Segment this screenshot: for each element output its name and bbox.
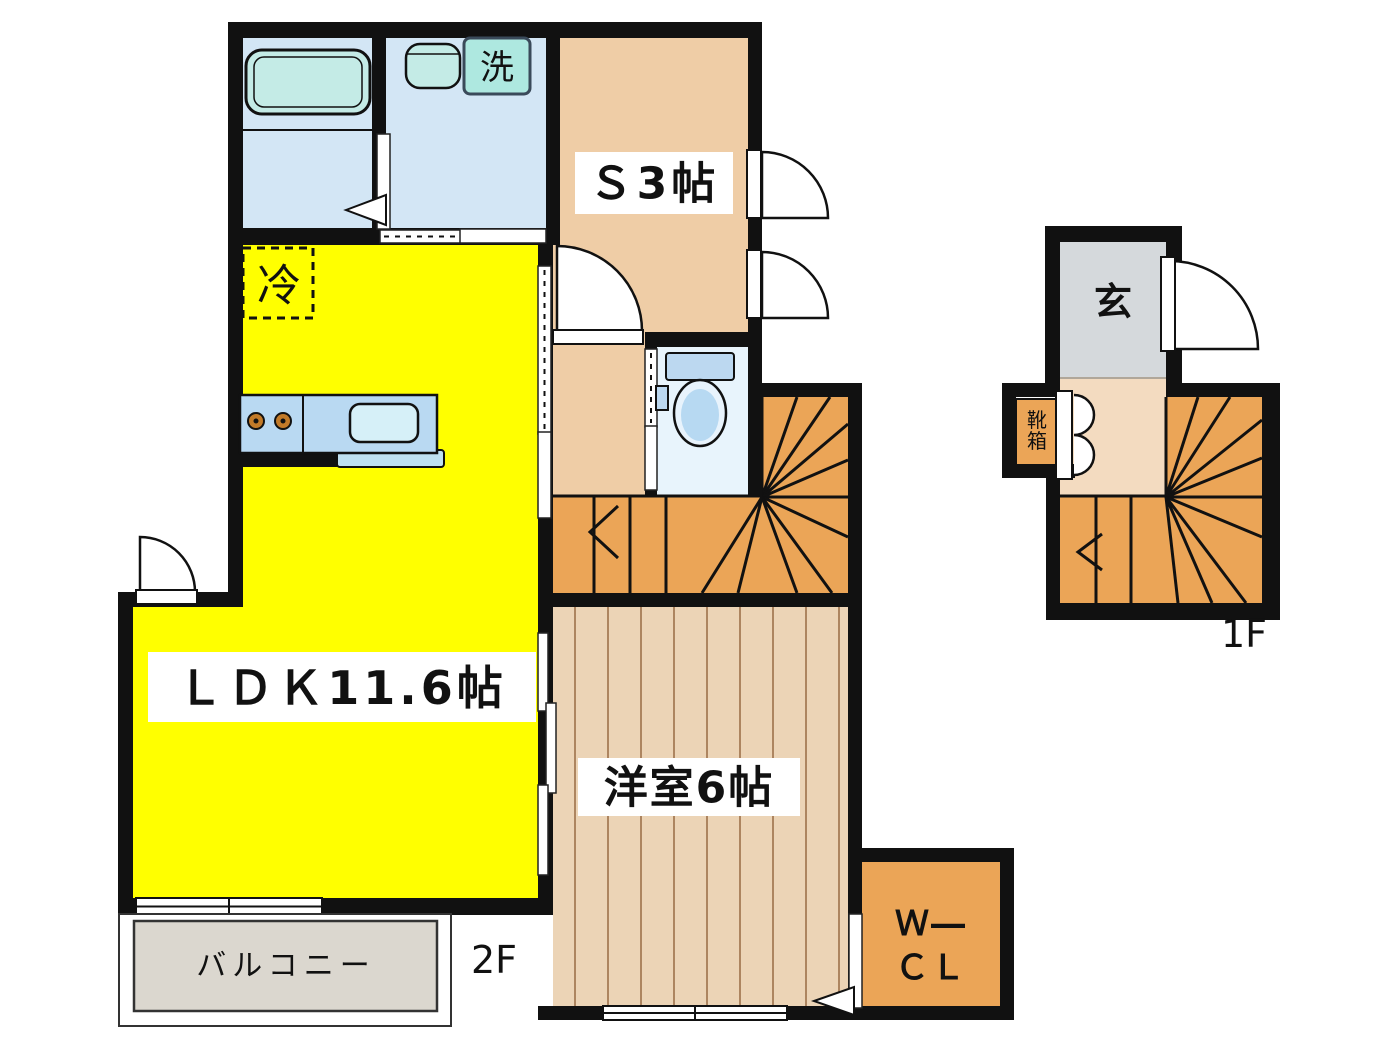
ldk-label: ＬＤＫ11.6帖 bbox=[177, 661, 507, 715]
floor2-label: 2F bbox=[471, 938, 517, 982]
entrance-door-leaf bbox=[1161, 257, 1175, 351]
floor1-plan: 玄 靴箱 1F bbox=[1002, 226, 1280, 656]
entrance-label: 玄 bbox=[1094, 280, 1132, 324]
wall bbox=[1045, 226, 1182, 242]
wall bbox=[228, 22, 243, 245]
exterior-door-swing bbox=[762, 152, 828, 218]
western-slide-leaf bbox=[538, 633, 548, 711]
wall bbox=[1045, 226, 1060, 397]
wall bbox=[848, 1006, 1014, 1020]
ldk-floor bbox=[133, 245, 538, 898]
wall bbox=[118, 592, 133, 915]
exterior-door-leaf bbox=[747, 150, 761, 218]
wcl-label-line2: ＣＬ bbox=[895, 948, 967, 988]
exterior-door-swing bbox=[762, 252, 828, 318]
floor-plan-canvas: 洗 冷 バルコニー ＬＤＫ11.6帖 Ｓ3帖 洋室6帖 Ｗ― ＣＬ 2F bbox=[0, 0, 1400, 1050]
toilet-slide-leaf bbox=[645, 426, 657, 490]
stair2f-upper-floor bbox=[762, 397, 848, 497]
fridge-label: 冷 bbox=[257, 261, 301, 312]
wall bbox=[1000, 848, 1014, 1020]
balcony-label: バルコニー bbox=[196, 949, 375, 984]
ldk-door-swing bbox=[140, 537, 195, 592]
western-room-label: 洋室6帖 bbox=[604, 763, 775, 814]
washing-machine-label: 洗 bbox=[480, 48, 514, 88]
shoebox-door-hinge-bar bbox=[1056, 391, 1072, 479]
stair2f-lower-floor bbox=[551, 497, 848, 593]
entrance-door-swing bbox=[1170, 261, 1258, 349]
shoe-box-label: 靴箱 bbox=[1027, 408, 1047, 453]
wcl-label-line1: Ｗ― bbox=[895, 904, 967, 944]
washroom-slide-leaf bbox=[460, 229, 546, 243]
wall bbox=[1002, 383, 1016, 478]
western-slide-leaf bbox=[538, 785, 548, 875]
wall bbox=[228, 22, 762, 38]
wall bbox=[748, 22, 762, 150]
stair1f-lower-floor bbox=[1060, 497, 1262, 603]
floor-plan-drawing: 洗 冷 バルコニー ＬＤＫ11.6帖 Ｓ3帖 洋室6帖 Ｗ― ＣＬ 2F bbox=[0, 0, 1400, 1050]
washbasin bbox=[406, 44, 460, 88]
storage-door-leaf bbox=[553, 330, 643, 344]
wall bbox=[546, 22, 560, 232]
wall bbox=[755, 383, 862, 397]
wall bbox=[848, 848, 1014, 862]
wall bbox=[748, 218, 762, 250]
bathtub bbox=[246, 50, 370, 114]
wall bbox=[1046, 464, 1060, 620]
wall bbox=[645, 332, 762, 347]
floor1-label: 1F bbox=[1221, 612, 1267, 656]
western-slide-leaf bbox=[546, 703, 556, 793]
ldk-door-leaf bbox=[136, 590, 197, 604]
kitchen-sink bbox=[350, 404, 418, 442]
wall bbox=[748, 347, 762, 497]
wall bbox=[848, 383, 862, 607]
toilet-handle bbox=[656, 386, 668, 410]
wall bbox=[1262, 383, 1280, 620]
stair1f-upper-floor bbox=[1166, 397, 1262, 497]
toilet-bowl-inner bbox=[681, 389, 719, 441]
storage-label: Ｓ3帖 bbox=[589, 159, 720, 210]
exterior-door-leaf bbox=[747, 250, 761, 318]
toilet-tank bbox=[666, 353, 734, 380]
ldk-slide-leaf bbox=[538, 432, 551, 518]
balcony: バルコニー bbox=[119, 914, 451, 1026]
wall bbox=[538, 593, 862, 607]
